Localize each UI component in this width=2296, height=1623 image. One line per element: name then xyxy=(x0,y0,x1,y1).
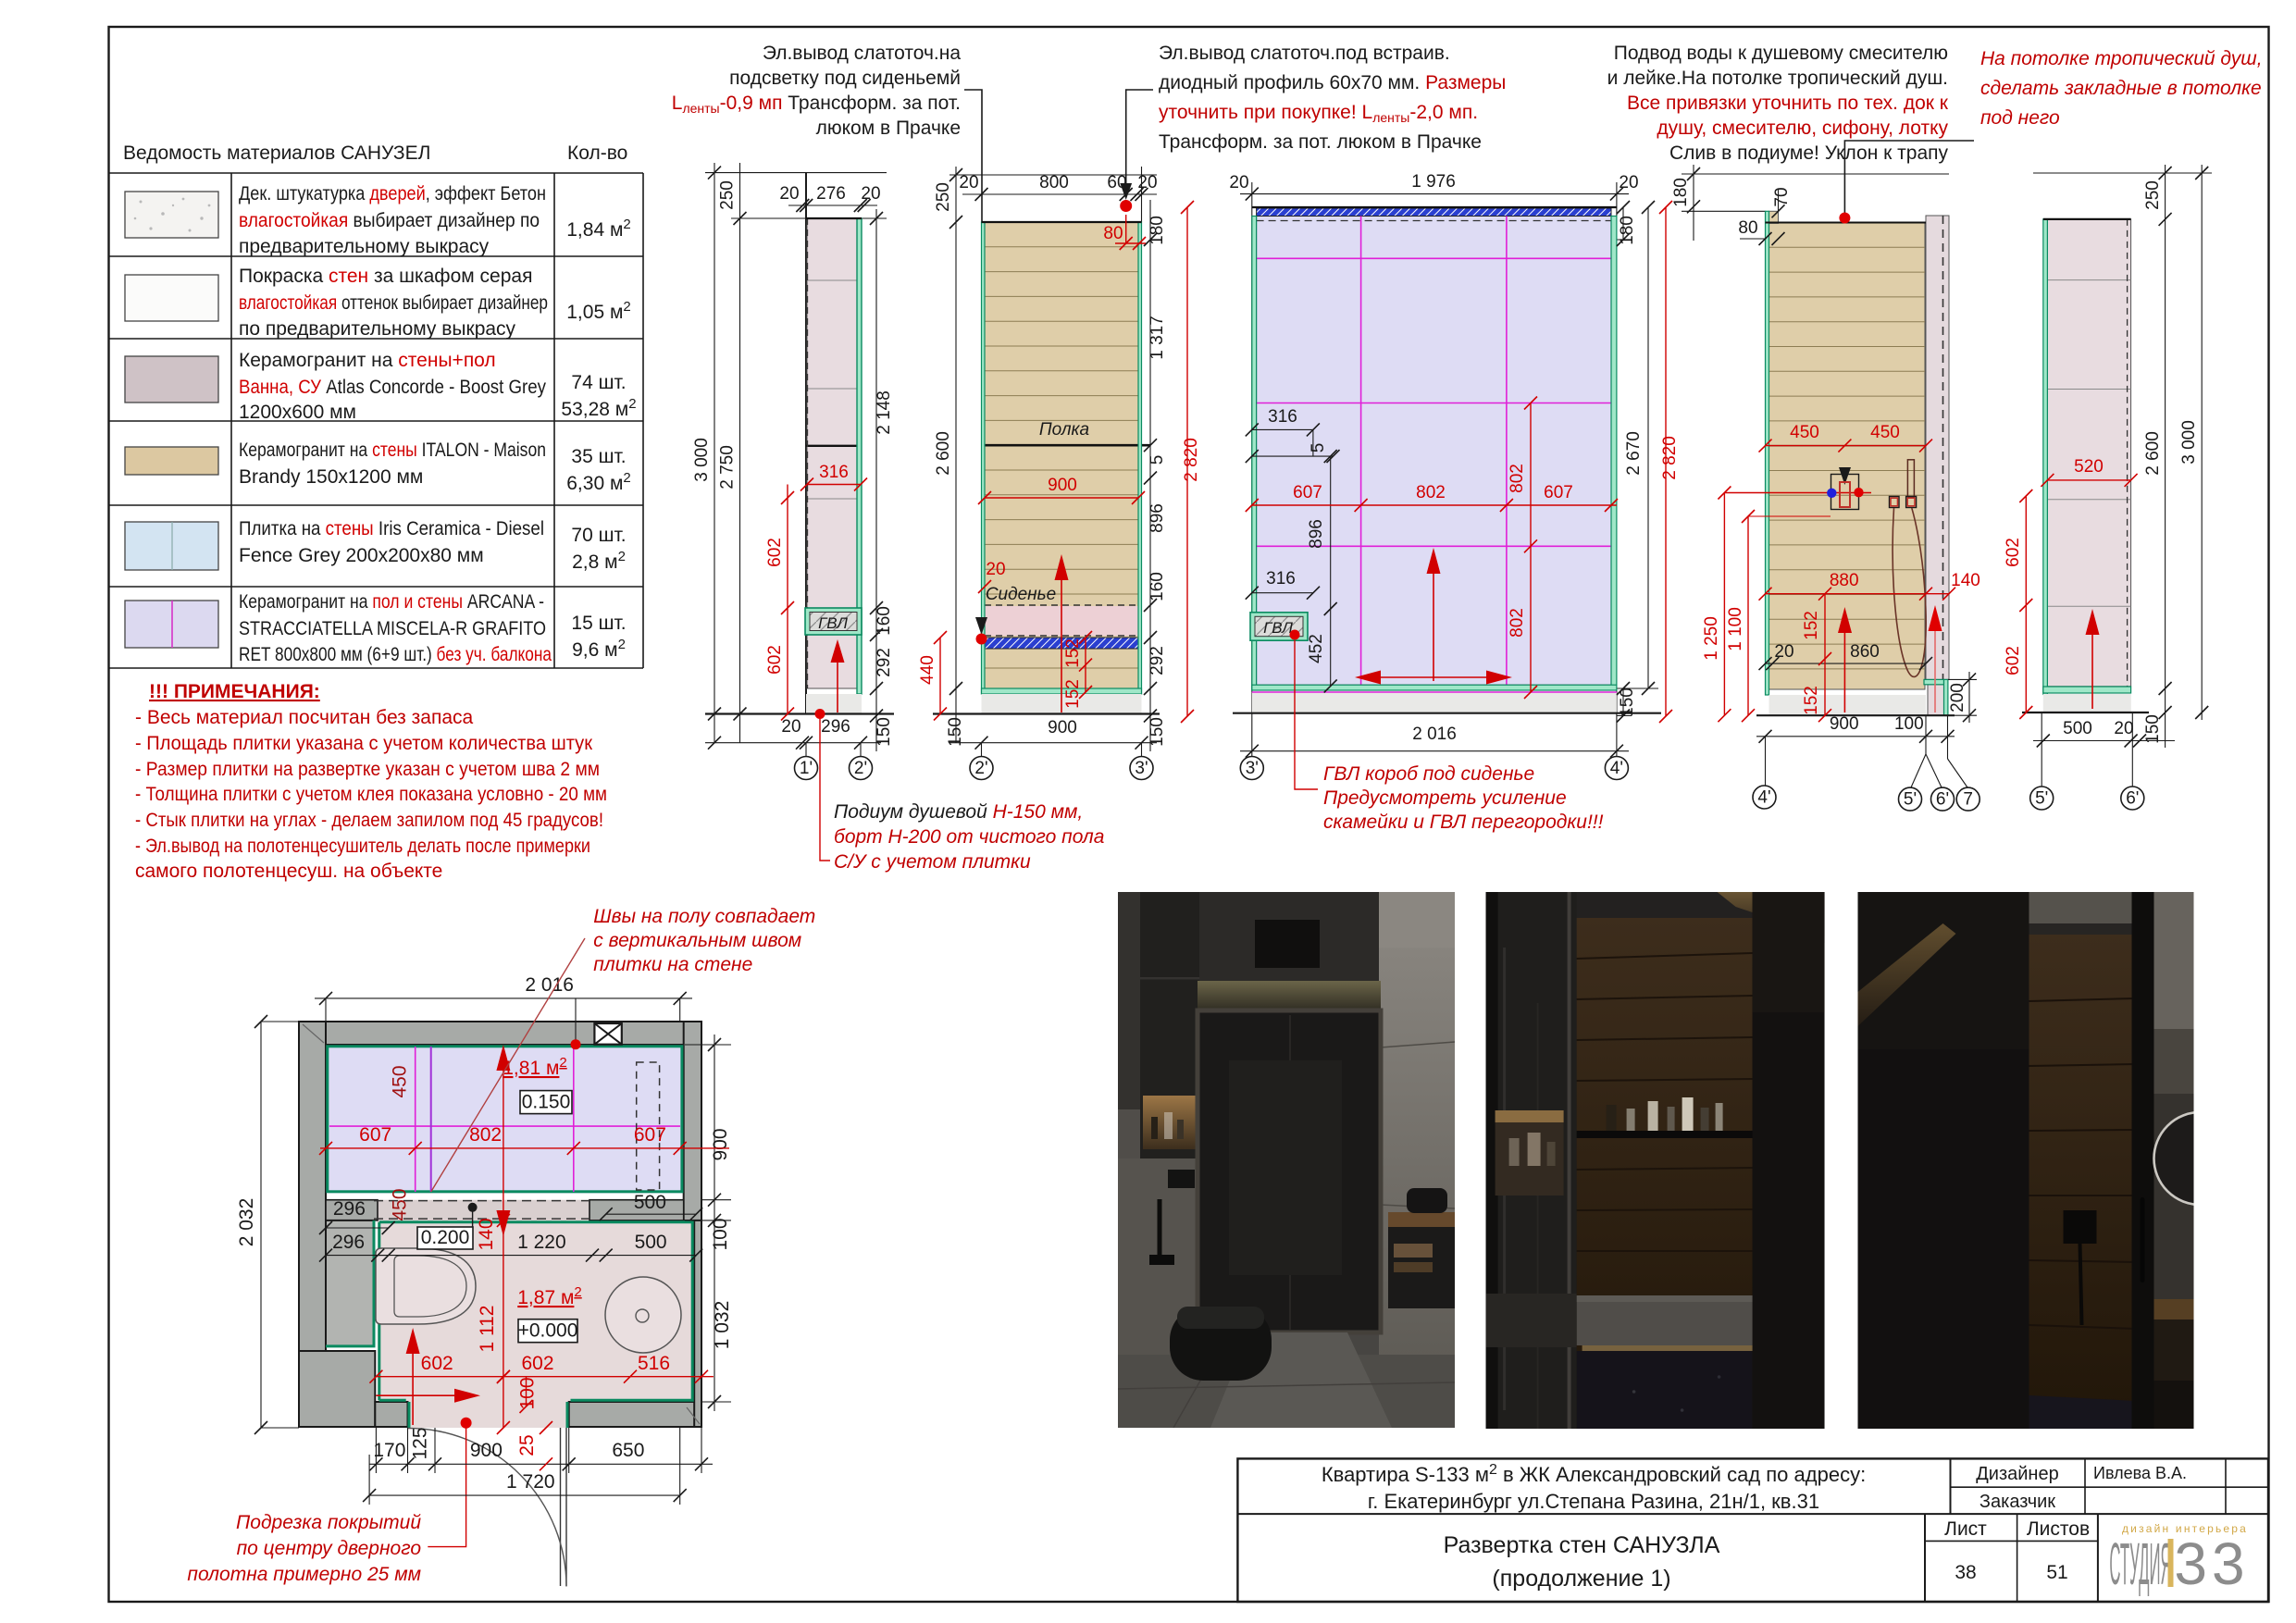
svg-text:80: 80 xyxy=(1103,224,1123,243)
svg-text:802: 802 xyxy=(469,1124,502,1146)
svg-text:6': 6' xyxy=(1936,790,1949,810)
svg-text:896: 896 xyxy=(1307,519,1326,549)
svg-text:20: 20 xyxy=(1774,642,1793,662)
svg-text:20: 20 xyxy=(781,717,800,737)
svg-text:Покраска стен за шкафом серая: Покраска стен за шкафом серая xyxy=(239,266,532,287)
svg-text:602: 602 xyxy=(765,538,785,567)
svg-text:296: 296 xyxy=(821,717,850,737)
svg-text:1200х600 мм: 1200х600 мм xyxy=(239,402,356,423)
svg-text:200: 200 xyxy=(1948,683,1967,712)
svg-text:160: 160 xyxy=(1148,572,1167,601)
svg-text:5: 5 xyxy=(1148,455,1167,465)
svg-text:Керамогранит на пол и стены AR: Керамогранит на пол и стены ARCANA - xyxy=(239,591,544,613)
svg-text:500: 500 xyxy=(2063,719,2092,738)
svg-text:3': 3' xyxy=(1246,759,1259,778)
svg-text:Подвод воды к душевому смесите: Подвод воды к душевому смесителю xyxy=(1614,43,1948,64)
svg-text:STRACCIATELLA MISCELA-R GRAFIT: STRACCIATELLA MISCELA-R GRAFITO xyxy=(239,618,546,639)
svg-text:Ванна, СУ Atlas Concorde - Boo: Ванна, СУ Atlas Concorde - Boost Grey xyxy=(239,377,546,398)
svg-text:450: 450 xyxy=(1790,423,1819,442)
svg-text:70 шт.: 70 шт. xyxy=(571,525,626,546)
svg-text:полотна примерно 25 мм: полотна примерно 25 мм xyxy=(187,1564,421,1585)
svg-text:6,30 м2: 6,30 м2 xyxy=(566,470,631,494)
svg-text:20: 20 xyxy=(1619,173,1638,192)
svg-text:5: 5 xyxy=(1309,443,1328,453)
svg-text:Плитка на стены Iris Ceramica: Плитка на стены Iris Ceramica - Diesel xyxy=(239,518,544,539)
svg-text:влагостойкая оттенок выбирает: влагостойкая оттенок выбирает дизайнер xyxy=(239,292,548,314)
svg-text:Лист: Лист xyxy=(1944,1518,1987,1540)
svg-text:74 шт.: 74 шт. xyxy=(571,372,626,393)
svg-text:СТУДИЯ: СТУДИЯ xyxy=(2109,1531,2171,1597)
svg-text:900: 900 xyxy=(470,1440,503,1461)
svg-text:Ведомость материалов САНУЗЕЛ: Ведомость материалов САНУЗЕЛ xyxy=(123,142,430,164)
svg-text:Керамогранит на стены+пол: Керамогранит на стены+пол xyxy=(239,350,496,371)
svg-text:Ивлева В.А.: Ивлева В.А. xyxy=(2093,1464,2187,1482)
svg-text:ГВЛ: ГВЛ xyxy=(818,614,848,632)
svg-text:20: 20 xyxy=(1137,173,1157,192)
svg-text:с вертикальным швом: с вертикальным швом xyxy=(593,930,801,951)
svg-text:Квартира S-133 м2 в ЖК Алексан: Квартира S-133 м2 в ЖК Александровский с… xyxy=(1322,1462,1866,1486)
svg-text:2 670: 2 670 xyxy=(1624,431,1644,476)
svg-text:ГВЛ: ГВЛ xyxy=(1263,619,1293,637)
svg-text:150: 150 xyxy=(946,717,965,747)
svg-text:900: 900 xyxy=(1048,476,1077,495)
svg-text:- Стык плитки на углах - делае: - Стык плитки на углах - делаем запилом … xyxy=(135,810,603,831)
svg-text:1,87 м2: 1,87 м2 xyxy=(517,1284,582,1308)
svg-text:802: 802 xyxy=(1416,483,1446,502)
svg-text:4': 4' xyxy=(1610,759,1623,778)
svg-text:Подиум душевой Н-150 мм,: Подиум душевой Н-150 мм, xyxy=(834,801,1083,823)
svg-text:38: 38 xyxy=(1955,1562,1976,1583)
svg-text:250: 250 xyxy=(934,182,953,212)
svg-text:140: 140 xyxy=(476,1218,497,1250)
svg-text:5': 5' xyxy=(1904,790,1917,810)
svg-text:На потолке тропический душ,: На потолке тропический душ, xyxy=(1980,48,2263,69)
svg-text:896: 896 xyxy=(1148,503,1167,533)
svg-text:53,28 м2: 53,28 м2 xyxy=(561,396,636,420)
svg-text:500: 500 xyxy=(635,1232,667,1253)
svg-text:Кол-во: Кол-во xyxy=(567,142,627,164)
svg-text:296: 296 xyxy=(332,1232,365,1253)
svg-text:450: 450 xyxy=(1870,423,1900,442)
svg-text:80: 80 xyxy=(1738,218,1757,238)
svg-text:150: 150 xyxy=(1618,688,1637,717)
svg-text:- Весь материал посчитан без з: - Весь материал посчитан без запаса xyxy=(135,707,473,728)
svg-text:520: 520 xyxy=(2074,457,2104,477)
svg-text:!!! ПРИМЕЧАНИЯ:: !!! ПРИМЕЧАНИЯ: xyxy=(149,681,320,702)
svg-text:800: 800 xyxy=(1039,173,1069,192)
svg-text:250: 250 xyxy=(2143,180,2163,210)
svg-text:180: 180 xyxy=(1148,216,1167,245)
svg-text:1 220: 1 220 xyxy=(517,1232,566,1253)
svg-text:Brandy 150х1200 мм: Brandy 150х1200 мм xyxy=(239,466,423,488)
svg-text:1 317: 1 317 xyxy=(1148,316,1167,360)
svg-text:Lленты-0,9 мп Трансформ. за по: Lленты-0,9 мп Трансформ. за пот. xyxy=(672,93,961,116)
svg-text:предварительному выкрасу: предварительному выкрасу xyxy=(239,236,490,257)
svg-text:150: 150 xyxy=(2143,714,2163,744)
svg-text:1 112: 1 112 xyxy=(477,1306,498,1353)
svg-text:100: 100 xyxy=(1894,714,1924,734)
svg-text:Полка: Полка xyxy=(1039,420,1089,440)
svg-text:4': 4' xyxy=(1757,788,1770,808)
svg-text:602: 602 xyxy=(765,645,785,675)
svg-text:602: 602 xyxy=(421,1353,453,1374)
svg-text:125: 125 xyxy=(410,1427,431,1459)
svg-text:Заказчик: Заказчик xyxy=(1980,1492,2055,1512)
svg-text:Швы на полу совпадает: Швы на полу совпадает xyxy=(593,906,815,927)
svg-text:2 600: 2 600 xyxy=(2143,431,2163,476)
svg-text:292: 292 xyxy=(1148,646,1167,675)
svg-text:- Размер плитки на развертке у: - Размер плитки на развертке указан с уч… xyxy=(135,759,600,780)
svg-text:607: 607 xyxy=(359,1124,391,1146)
svg-text:С/У с учетом плитки: С/У с учетом плитки xyxy=(834,851,1031,873)
svg-text:1 032: 1 032 xyxy=(712,1301,733,1350)
svg-text:860: 860 xyxy=(1850,642,1880,662)
svg-text:г. Екатеринбург ул.Степана Раз: г. Екатеринбург ул.Степана Разина, 21н/1… xyxy=(1368,1490,1819,1513)
svg-text:452: 452 xyxy=(1307,634,1326,663)
svg-text:душу, смесителю, сифону, лотку: душу, смесителю, сифону, лотку xyxy=(1657,118,1948,139)
svg-text:подсветку под сиденьемй: подсветку под сиденьемй xyxy=(729,68,961,89)
svg-text:602: 602 xyxy=(521,1353,553,1374)
svg-text:20: 20 xyxy=(861,184,880,204)
svg-text:140: 140 xyxy=(1951,571,1980,590)
svg-text:Сиденье: Сиденье xyxy=(986,585,1056,604)
svg-text:3 000: 3 000 xyxy=(692,438,712,482)
svg-text:276: 276 xyxy=(816,184,846,204)
svg-text:1,05 м2: 1,05 м2 xyxy=(566,299,631,323)
svg-text:900: 900 xyxy=(710,1128,731,1160)
svg-text:Предусмотреть усиление: Предусмотреть усиление xyxy=(1323,787,1567,809)
svg-text:180: 180 xyxy=(1671,178,1691,207)
svg-text:20: 20 xyxy=(1229,173,1248,192)
svg-text:20: 20 xyxy=(2114,719,2133,738)
svg-text:602: 602 xyxy=(2004,538,2023,567)
svg-text:6': 6' xyxy=(2126,789,2139,809)
svg-text:150: 150 xyxy=(875,717,894,747)
svg-text:борт Н-200 от чистого пола: борт Н-200 от чистого пола xyxy=(834,826,1104,848)
svg-text:Листов: Листов xyxy=(2027,1518,2090,1540)
svg-text:Fence Grey 200х200х80 мм: Fence Grey 200х200х80 мм xyxy=(239,545,484,566)
svg-text:Подрезка покрытий: Подрезка покрытий xyxy=(236,1512,421,1533)
svg-text:Эл.вывод слатоточ.под встраив.: Эл.вывод слатоточ.под встраив. xyxy=(1159,43,1450,64)
svg-text:2 750: 2 750 xyxy=(718,445,738,489)
svg-text:500: 500 xyxy=(634,1192,666,1213)
svg-text:900: 900 xyxy=(1830,714,1859,734)
svg-text:450: 450 xyxy=(390,1065,411,1097)
svg-text:802: 802 xyxy=(1508,464,1527,493)
svg-text:диодный профиль 60х70 мм. Разм: диодный профиль 60х70 мм. Размеры xyxy=(1159,72,1506,93)
svg-text:100: 100 xyxy=(517,1377,539,1409)
svg-text:0.200: 0.200 xyxy=(421,1227,470,1248)
svg-text:2 820: 2 820 xyxy=(1182,438,1201,482)
svg-text:100: 100 xyxy=(710,1218,731,1250)
svg-text:Дек. штукатурка дверей, эффект: Дек. штукатурка дверей, эффект Бетон xyxy=(239,183,546,204)
svg-text:2': 2' xyxy=(974,759,987,778)
svg-text:900: 900 xyxy=(1048,718,1077,737)
svg-text:607: 607 xyxy=(634,1124,666,1146)
svg-text:25: 25 xyxy=(516,1434,538,1456)
svg-text:Все привязки уточнить по тех.: Все привязки уточнить по тех. док к xyxy=(1627,93,1949,114)
svg-text:ГВЛ короб под сиденье: ГВЛ короб под сиденье xyxy=(1323,763,1534,785)
svg-text:602: 602 xyxy=(2004,646,2023,675)
svg-text:0.150: 0.150 xyxy=(522,1092,571,1113)
svg-text:1 250: 1 250 xyxy=(1702,616,1721,661)
svg-text:2 820: 2 820 xyxy=(1660,436,1680,480)
svg-text:650: 650 xyxy=(612,1440,644,1461)
svg-text:уточнить при покупке! Lленты-2: уточнить при покупке! Lленты-2,0 мп. xyxy=(1159,102,1478,125)
svg-text:250: 250 xyxy=(718,180,738,210)
svg-text:2': 2' xyxy=(854,759,867,778)
svg-text:плитки на стене: плитки на стене xyxy=(593,954,752,975)
svg-text:152: 152 xyxy=(1063,679,1083,709)
svg-text:Эл.вывод слатоточ.на: Эл.вывод слатоточ.на xyxy=(763,43,962,64)
svg-text:7: 7 xyxy=(1963,790,1973,810)
svg-text:2,8 м2: 2,8 м2 xyxy=(572,549,626,573)
svg-text:2 600: 2 600 xyxy=(934,431,953,476)
svg-text:20: 20 xyxy=(779,184,799,204)
svg-text:316: 316 xyxy=(819,463,849,482)
svg-text:по центру дверного: по центру дверного xyxy=(237,1538,422,1559)
svg-text:880: 880 xyxy=(1830,571,1859,590)
svg-text:35 шт.: 35 шт. xyxy=(571,446,626,467)
svg-text:2 032: 2 032 xyxy=(236,1198,257,1247)
svg-text:170: 170 xyxy=(373,1440,405,1461)
svg-text:1 976: 1 976 xyxy=(1411,172,1456,192)
svg-text:160: 160 xyxy=(875,606,894,636)
svg-text:самого полотенцесуш. на объект: самого полотенцесуш. на объекте xyxy=(135,861,442,882)
svg-text:2 016: 2 016 xyxy=(1412,725,1457,744)
svg-text:152: 152 xyxy=(1802,611,1821,640)
svg-text:2 016: 2 016 xyxy=(525,974,574,996)
svg-text:607: 607 xyxy=(1293,483,1322,502)
svg-text:5': 5' xyxy=(2035,789,2048,809)
svg-text:3 000: 3 000 xyxy=(2179,420,2199,465)
svg-text:влагостойкая выбирает дизайнер: влагостойкая выбирает дизайнер по xyxy=(239,210,540,231)
svg-text:802: 802 xyxy=(1508,608,1527,638)
svg-text:люком в Прачке: люком в Прачке xyxy=(816,118,961,139)
svg-text:Дизайнер: Дизайнер xyxy=(1976,1464,2058,1484)
svg-text:- Толщина плитки с учетом клея: - Толщина плитки с учетом клея показана … xyxy=(135,784,607,805)
svg-text:- Площадь плитки указана с уче: - Площадь плитки указана с учетом количе… xyxy=(135,733,593,754)
svg-text:9,6 м2: 9,6 м2 xyxy=(572,637,626,661)
svg-text:516: 516 xyxy=(638,1353,670,1374)
svg-text:(продолжение 1): (продолжение 1) xyxy=(1492,1566,1670,1592)
svg-text:RET 800х800 мм (6+9 шт.) без у: RET 800х800 мм (6+9 шт.) без уч. балкона xyxy=(239,644,552,665)
svg-text:316: 316 xyxy=(1266,569,1296,588)
svg-text:1': 1' xyxy=(800,759,813,778)
svg-text:1 100: 1 100 xyxy=(1726,607,1745,651)
svg-text:450: 450 xyxy=(390,1188,411,1220)
svg-text:3': 3' xyxy=(1135,759,1148,778)
svg-text:440: 440 xyxy=(918,655,937,685)
svg-text:2 148: 2 148 xyxy=(875,390,894,435)
svg-text:20: 20 xyxy=(959,173,978,192)
svg-text:по предварительному выкрасу: по предварительному выкрасу xyxy=(239,318,516,340)
svg-text:под него: под него xyxy=(1980,107,2060,129)
svg-text:150: 150 xyxy=(1148,717,1167,747)
svg-text:296: 296 xyxy=(333,1198,366,1220)
svg-text:20: 20 xyxy=(986,560,1005,579)
svg-text:сделать закладные в потолке: сделать закладные в потолке xyxy=(1980,78,2262,99)
svg-text:- Эл.вывод на полотенцесушител: - Эл.вывод на полотенцесушитель делать п… xyxy=(135,836,590,857)
svg-text:70: 70 xyxy=(1772,187,1792,206)
svg-text:152: 152 xyxy=(1802,686,1821,715)
svg-text:и лейке.На потолке тропический: и лейке.На потолке тропический душ. xyxy=(1607,68,1948,89)
svg-text:180: 180 xyxy=(1618,216,1637,245)
svg-text:316: 316 xyxy=(1268,407,1297,427)
svg-text:Развертка стен САНУЗЛА: Развертка стен САНУЗЛА xyxy=(1444,1532,1720,1558)
svg-text:607: 607 xyxy=(1544,483,1573,502)
svg-text:152: 152 xyxy=(1063,638,1083,668)
svg-text:1,84 м2: 1,84 м2 xyxy=(566,217,631,241)
svg-text:15 шт.: 15 шт. xyxy=(571,613,626,634)
svg-text:33: 33 xyxy=(2174,1530,2249,1597)
svg-text:292: 292 xyxy=(875,648,894,677)
svg-text:Слив в подиуме! Уклон к трапу: Слив в подиуме! Уклон к трапу xyxy=(1669,142,1949,164)
svg-text:Керамогранит на стены ITALON -: Керамогранит на стены ITALON - Maison xyxy=(239,440,546,461)
svg-text:Трансформ. за пот. люком в Пра: Трансформ. за пот. люком в Прачке xyxy=(1159,131,1482,153)
svg-text:+0.000: +0.000 xyxy=(518,1320,578,1342)
svg-text:51: 51 xyxy=(2046,1562,2067,1583)
svg-text:1 720: 1 720 xyxy=(506,1471,555,1493)
svg-text:скамейки и ГВЛ перегородки!!!: скамейки и ГВЛ перегородки!!! xyxy=(1323,811,1604,833)
